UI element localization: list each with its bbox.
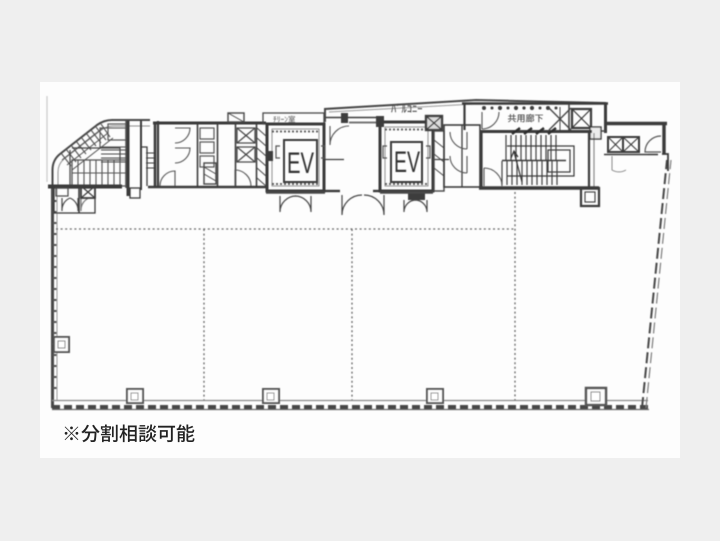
svg-text:EV: EV	[287, 147, 314, 180]
svg-text:EV: EV	[394, 146, 420, 179]
